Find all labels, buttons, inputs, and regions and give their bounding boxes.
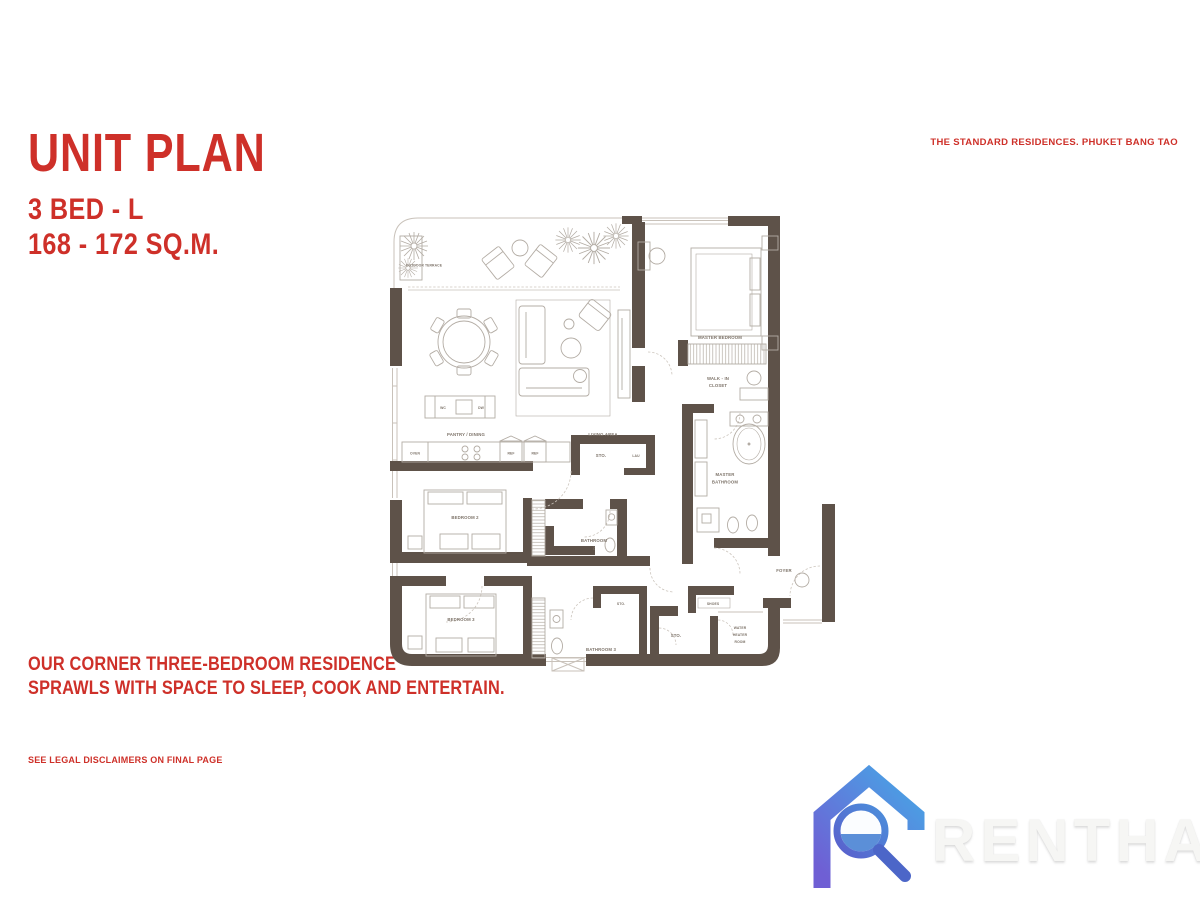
label-dw: DW [478, 406, 485, 410]
renthai-logo-icon [808, 764, 930, 890]
wall-segment [639, 586, 647, 656]
door-arc-closet [648, 352, 672, 376]
wall-segment [617, 509, 627, 562]
nightstand [408, 636, 422, 649]
wall-segment [682, 404, 693, 564]
palm-tree-icon [603, 223, 628, 248]
bed-3 [408, 594, 496, 656]
label-shoes: SHOES [707, 602, 720, 606]
wardrobe-2 [532, 500, 545, 556]
door-arc-water-heater [718, 620, 733, 635]
bed-2 [408, 490, 506, 553]
wall-segment [390, 576, 446, 586]
page-title: UNIT PLAN [28, 126, 266, 180]
coffee-table [561, 338, 581, 358]
wall-segment [678, 340, 688, 366]
watermark-text: RENTHAI [932, 806, 1200, 875]
label-master-bath-1: MASTER [715, 472, 735, 477]
terrace-outline [394, 218, 622, 292]
wall-segment [632, 366, 645, 402]
windows-and-outline [393, 218, 823, 671]
side-table [564, 319, 574, 329]
wall-segment [593, 586, 601, 608]
nightstand [408, 536, 422, 549]
toilet [552, 638, 563, 654]
wall-segment [710, 616, 718, 654]
page: { "header": { "title": "UNIT PLAN", "uni… [0, 0, 1200, 900]
living-sofa [516, 298, 630, 416]
wall-corner [390, 580, 428, 666]
door-arc-entry [790, 566, 820, 596]
master-bed [638, 236, 778, 350]
floor-plan-svg: OUTDOOR TERRACE PANTRY / DINING LIVING A… [388, 208, 838, 674]
entry-threshold [783, 620, 822, 623]
wall-segment [714, 538, 780, 548]
label-water-heater-1: WATER [734, 626, 747, 630]
label-bathroom2-1: BATHROOM [581, 538, 607, 543]
label-walk-in-2: CLOSET [709, 383, 728, 388]
wall-segment [390, 552, 527, 563]
lounge-chair [524, 244, 557, 278]
watermark: RENTHAI [808, 764, 1188, 894]
label-ref-1: REF [507, 452, 514, 456]
palm-tree-icon [578, 232, 610, 264]
label-bedroom3: BEDROOM 3 [447, 617, 475, 622]
label-pantry-dining: PANTRY / DINING [447, 432, 485, 437]
wall-segment [768, 222, 780, 556]
wardrobe-3 [532, 598, 545, 658]
label-living-area: LIVING AREA [588, 432, 617, 437]
wall-segment [632, 222, 645, 348]
label-water-heater-3: ROOM [735, 640, 746, 644]
vent-box-cross [552, 658, 584, 671]
foyer-fixture [795, 573, 809, 587]
label-bathroom2-2: 2 [593, 546, 596, 551]
dining-table [429, 309, 499, 375]
label-sto-1: STO. [596, 453, 607, 458]
tv-console [618, 310, 630, 398]
stool [747, 371, 761, 385]
legal-note: SEE LEGAL DISCLAIMERS ON FINAL PAGE [28, 755, 223, 765]
label-sto-3: STO. [671, 633, 682, 638]
wall-segment [523, 576, 532, 660]
left-window-upper [393, 368, 398, 498]
toilet [728, 517, 739, 533]
wall-segment [545, 499, 583, 509]
bidet [747, 515, 758, 531]
label-master-bedroom: MASTER BEDROOM [698, 335, 742, 340]
lounge-chair [481, 246, 514, 280]
label-outdoor-terrace: OUTDOOR TERRACE [406, 264, 443, 268]
label-water-heater-2: HEATER [733, 633, 748, 637]
unit-area: 168 - 172 SQ.M. [28, 228, 219, 263]
wall-segment [390, 500, 402, 560]
bath-cabinet [695, 462, 707, 496]
label-ref-2: REF [531, 452, 538, 456]
label-walk-in-1: WALK - IN [707, 376, 729, 381]
palm-tree-icon [555, 227, 580, 252]
magnifier-handle [879, 850, 905, 876]
door-arc-bathroom3 [571, 598, 593, 620]
bathroom3-fixtures [550, 610, 563, 654]
wall-segment [763, 598, 791, 608]
wall-segment [527, 556, 650, 566]
bathroom2-fixtures [605, 510, 617, 552]
wall-segment [390, 288, 402, 366]
dressing-table [740, 388, 768, 400]
wall-segment [545, 546, 595, 555]
unit-type: 3 BED - L [28, 193, 219, 228]
label-master-bath-2: BATHROOM [712, 480, 738, 485]
brand-line: THE STANDARD RESIDENCES. PHUKET BANG TAO [930, 137, 1178, 148]
label-oven: OVEN [410, 452, 420, 456]
label-sto-2: STO. [617, 602, 625, 606]
left-window-lower [393, 562, 398, 578]
label-wc: WC [440, 406, 446, 410]
wall-corner [730, 608, 780, 666]
wall-segment [822, 504, 835, 622]
wall-segment [610, 499, 627, 509]
terrace-table [512, 240, 528, 256]
wall-segment [682, 404, 714, 413]
bath-cabinet [695, 420, 707, 458]
shower [697, 508, 719, 532]
kitchen-counter [402, 436, 570, 462]
door-arc-foyer [714, 548, 740, 574]
label-foyer: FOYER [776, 568, 792, 573]
master-bedroom-window [642, 221, 728, 225]
wall-segment [571, 435, 580, 475]
wall-segment [650, 606, 659, 656]
wall-segment [624, 468, 655, 475]
label-bedroom2: BEDROOM 2 [451, 515, 479, 520]
closet-wardrobe [688, 344, 766, 364]
wall-segment [523, 498, 532, 562]
door-arc-hall [650, 568, 674, 592]
walls [390, 216, 835, 666]
desk-chair [649, 248, 665, 264]
palm-tree-icon [398, 258, 418, 278]
wall-segment [688, 586, 696, 613]
wall-segment [390, 461, 533, 471]
side-table [574, 370, 587, 383]
kitchen-island [425, 396, 495, 418]
unit-subtitle: 3 BED - L 168 - 172 SQ.M. [28, 193, 219, 263]
marketing-line-2: SPRAWLS WITH SPACE TO SLEEP, COOK AND EN… [28, 677, 505, 701]
wall-segment [593, 586, 647, 594]
label-lau: LAU [632, 454, 640, 458]
label-bathroom3: BATHROOM 3 [586, 647, 617, 652]
sink [606, 510, 617, 525]
sink [550, 610, 563, 628]
palm-tree-icon [400, 232, 428, 260]
